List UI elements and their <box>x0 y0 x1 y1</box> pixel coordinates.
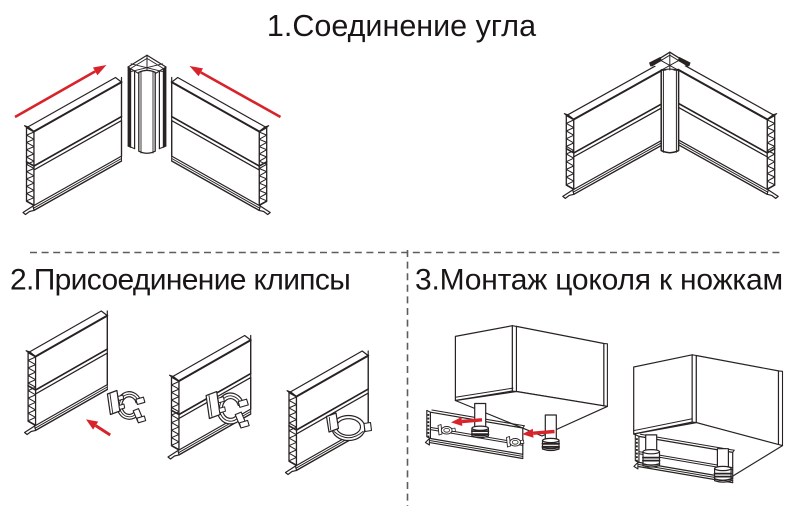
svg-text:1.Соединение угла: 1.Соединение угла <box>267 9 536 43</box>
svg-text:3.Монтаж цоколя к ножкам: 3.Монтаж цоколя к ножкам <box>415 264 783 297</box>
svg-text:2.Присоединение клипсы: 2.Присоединение клипсы <box>10 264 350 297</box>
